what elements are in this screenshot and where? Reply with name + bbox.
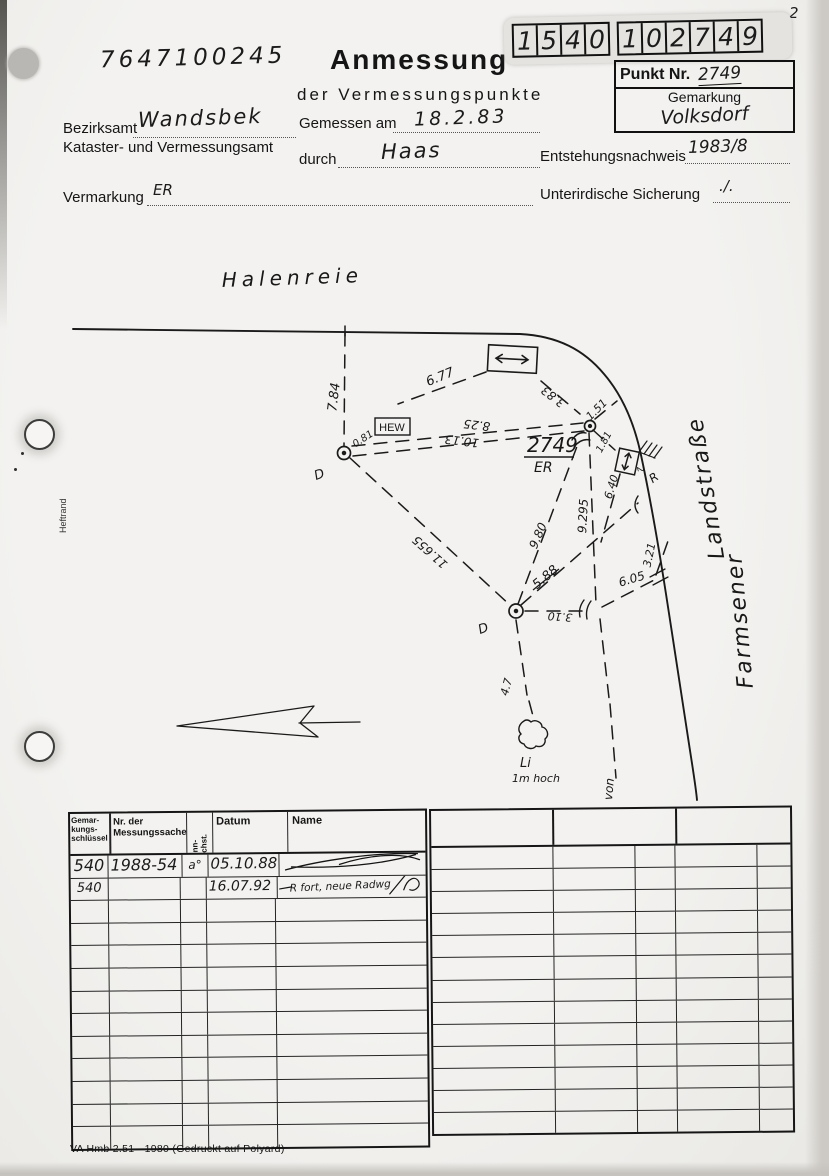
signature [279,853,424,874]
signature [278,875,423,898]
header-gemarkungsschluessel: Gemar- kungs- schlüssel [70,814,111,854]
double-arrow-box [487,345,537,374]
measure-3-83: 3.83 [539,383,569,410]
cell-datum: 05.10.88 [208,854,279,876]
line-von-upper [600,619,609,698]
header-kennbuchst-text: Kenn- buchst. [191,828,209,852]
header-messungssache: Nr. der Messungssache [111,813,187,854]
point-d-left: D [312,466,327,484]
measure-7-84: 7.84 [325,382,343,413]
measure-9-295: 9.295 [575,498,591,533]
table-header-row-empty [431,808,790,848]
line-11-655 [350,458,511,606]
street-label-landstrasse: Landstraße [683,415,730,561]
line-4-7 [516,620,527,695]
point-d-bottom: D [476,620,491,638]
table-row: 540 16.07.92 R fort, neue Radwg [71,875,426,901]
survey-point-bottom-dot [515,610,518,613]
cell-datum: 16.07.92 [207,877,278,899]
cell-schluessel: 540 [71,878,109,900]
measure-6-40: 6.40 [602,473,622,500]
cell-name: R fort, neue Radwg [278,875,426,898]
cell-schluessel: 540 [70,856,108,878]
record-table-right [429,806,795,1137]
header-datum: Datum [213,812,288,853]
curve-ticks [650,569,668,585]
measure-0-81: 0.81 [351,429,376,450]
cell-kenn: a° [182,855,208,877]
tree-label-height: 1m hoch [512,772,560,785]
header-name: Name [288,811,425,852]
line-9-295 [589,433,596,604]
valve-digit: 2 [634,465,645,473]
hew-label: HEW [379,422,405,434]
street-label-halenreie: Halenreie [221,263,363,292]
measure-11-655: 11.655 [410,533,451,572]
measure-3-21: 3.21 [641,542,659,569]
cell-kenn [181,877,207,899]
r-mark: R [646,470,661,486]
tree-symbol [519,720,548,748]
line-to-tree [529,701,533,716]
arc-marks-bottom [580,600,592,619]
scanned-survey-form: 2 7647100245 Anmessung der Vermessungspu… [0,0,829,1176]
hatch-marks [639,441,662,458]
von-label: von [601,777,617,800]
point-number-label: 2749 [527,433,578,457]
street-label-farmsener: Farmsener [722,552,759,690]
record-table-left: Gemar- kungs- schlüssel Nr. der Messungs… [68,809,430,1151]
measure-8-25: 8.25 [463,416,491,433]
measure-10-13: 10.13 [444,432,480,450]
survey-point-2749-dot [589,425,592,428]
table-row: 540 1988-54 a° 05.10.88 [70,853,425,879]
measure-3-10: 3.10 [547,609,572,624]
form-footer: VA Hmb 2.51 - 1980 (Gedruckt auf Polyard… [70,1143,285,1155]
cell-messungssache: 1988-54 [108,855,182,877]
line-von-lower [610,704,616,778]
measure-6-77: 6.77 [424,365,457,390]
table-header-row: Gemar- kungs- schlüssel Nr. der Messungs… [70,811,425,856]
measure-1-51: 1.51 [583,396,610,423]
survey-point-left-dot [343,452,346,455]
curb-arc [635,496,638,513]
header-kennbuchst: Kenn- buchst. [187,813,213,853]
point-marking-label: ER [534,460,553,476]
measure-4-7: 4.7 [498,677,515,697]
line-7-84 [344,333,345,446]
measure-9-80: 9.80 [526,520,549,550]
tree-label-li: Li [520,756,531,771]
north-arrow-icon [177,706,360,737]
cell-name [279,853,425,876]
cell-messungssache [109,878,181,900]
